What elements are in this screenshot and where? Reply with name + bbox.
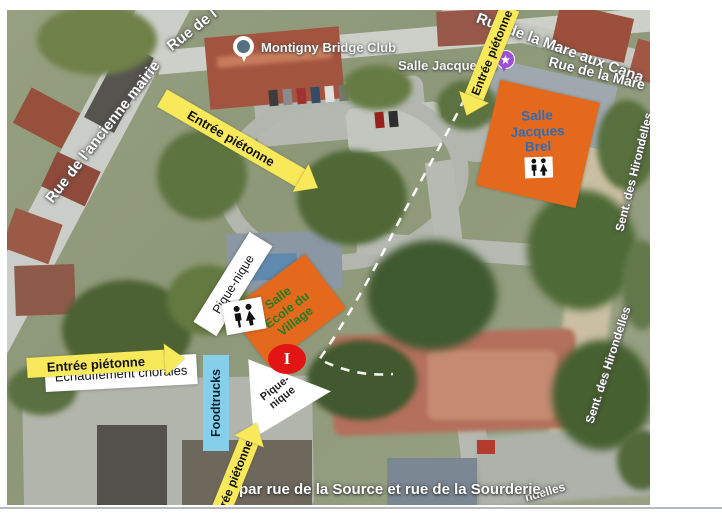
- satellite-map: Rue de l'ancienne mairie Rue de l Rue de…: [7, 10, 650, 505]
- annotated-map-screenshot: Rue de l'ancienne mairie Rue de l Rue de…: [0, 0, 722, 513]
- restroom-icon: [524, 156, 553, 178]
- arrow-head: [164, 342, 186, 375]
- brel-line1: Salle: [510, 107, 565, 124]
- brel-line2: Jacques: [510, 123, 565, 140]
- info-letter: I: [284, 349, 291, 369]
- poi-label-bridge-club: Montigny Bridge Club: [261, 40, 396, 55]
- arrow-label: Entrée piétonne: [46, 353, 145, 374]
- foodtrucks-label: Foodtrucks: [209, 369, 223, 437]
- restroom-icon: [222, 297, 267, 335]
- route-banner: par rue de la Source et rue de la Sourde…: [239, 481, 541, 498]
- foodtrucks-box: Foodtrucks: [203, 355, 229, 451]
- bottom-divider: [0, 507, 722, 509]
- map-pin-icon: [233, 36, 254, 57]
- info-marker: I: [268, 344, 306, 374]
- brel-line3: Brel: [511, 138, 566, 155]
- pin-dot: [237, 40, 250, 53]
- triangle-label: Pique- nique: [258, 373, 299, 413]
